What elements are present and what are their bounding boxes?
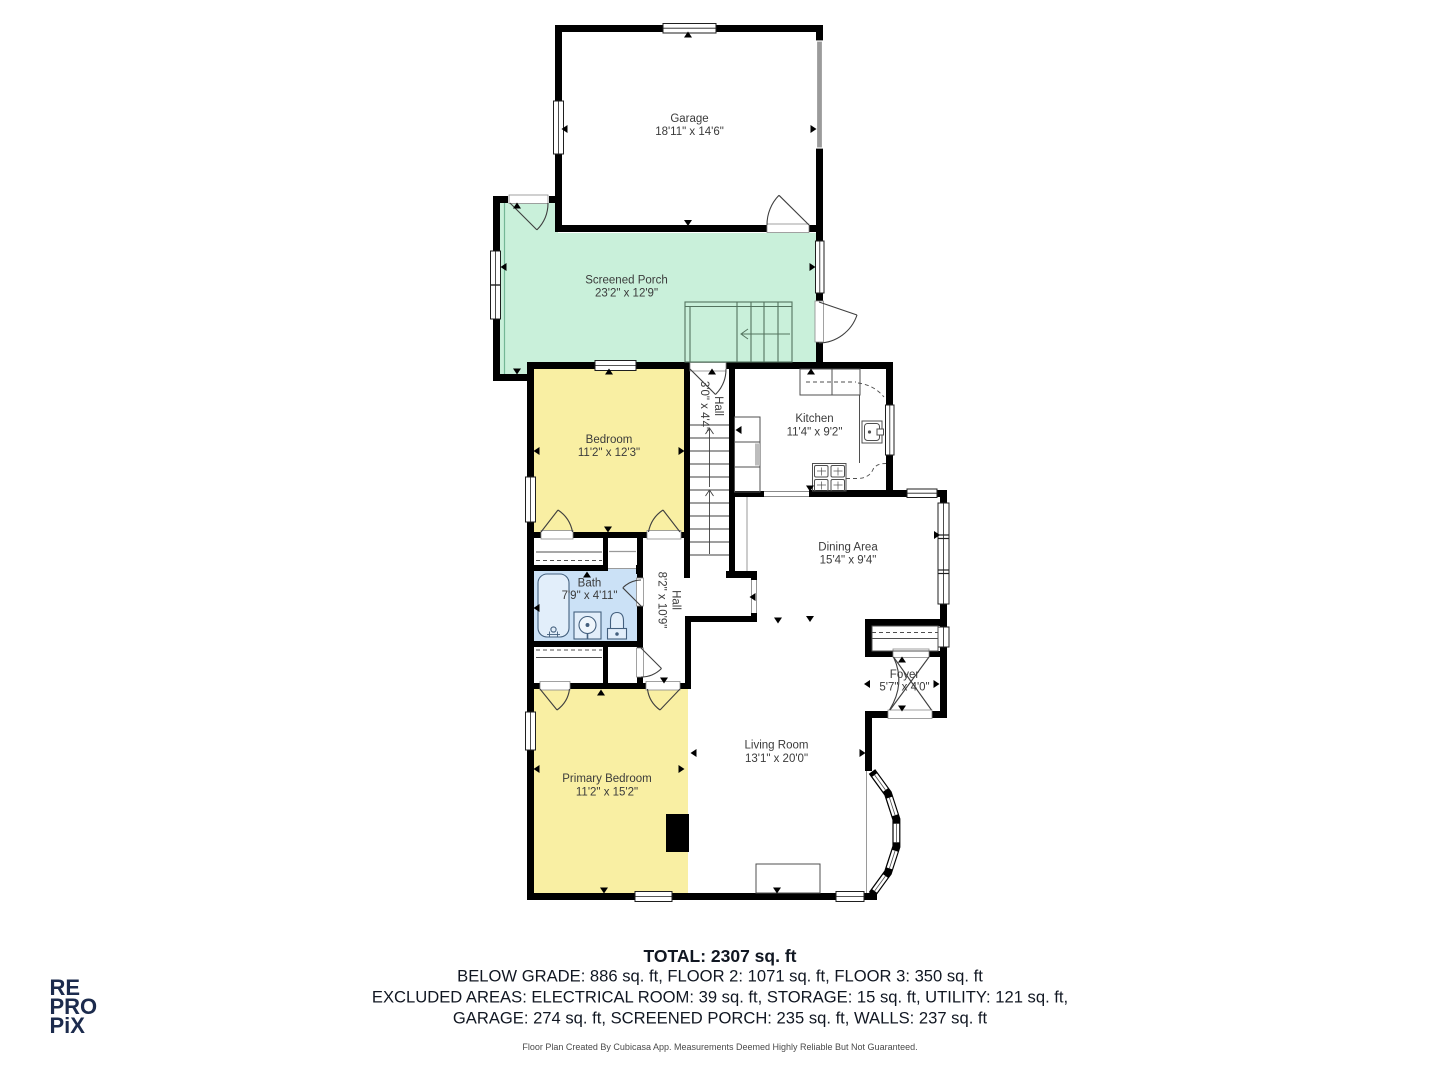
svg-text:11'2" x 12'3": 11'2" x 12'3" — [578, 447, 640, 459]
svg-text:EXCLUDED AREAS: ELECTRICAL ROO: EXCLUDED AREAS: ELECTRICAL ROOM: 39 sq. … — [372, 988, 1068, 1007]
svg-text:Kitchen: Kitchen — [795, 413, 833, 425]
svg-text:TOTAL: 2307 sq. ft: TOTAL: 2307 sq. ft — [644, 946, 797, 966]
svg-text:Dining Area: Dining Area — [818, 542, 878, 554]
svg-text:23'2" x 12'9": 23'2" x 12'9" — [595, 288, 658, 300]
svg-text:11'4" x 9'2": 11'4" x 9'2" — [787, 427, 843, 439]
svg-text:BELOW GRADE: 886 sq. ft, FLOOR: BELOW GRADE: 886 sq. ft, FLOOR 2: 1071 s… — [457, 967, 983, 986]
svg-text:15'4" x 9'4": 15'4" x 9'4" — [820, 555, 877, 567]
svg-text:13'1" x 20'0": 13'1" x 20'0" — [745, 753, 808, 765]
svg-text:Floor Plan Created By Cubicasa: Floor Plan Created By Cubicasa App. Meas… — [522, 1042, 917, 1052]
svg-text:18'11" x 14'6": 18'11" x 14'6" — [655, 126, 724, 138]
svg-text:Bath: Bath — [578, 578, 602, 590]
svg-text:Primary Bedroom: Primary Bedroom — [562, 773, 651, 785]
svg-text:Living Room: Living Room — [745, 740, 809, 752]
svg-text:PiX: PiX — [50, 1013, 86, 1038]
svg-text:Garage: Garage — [670, 113, 708, 125]
svg-text:Screened Porch: Screened Porch — [585, 275, 667, 287]
svg-text:11'2" x 15'2": 11'2" x 15'2" — [576, 787, 638, 799]
svg-text:Bedroom: Bedroom — [586, 434, 633, 446]
svg-text:7'9" x 4'11": 7'9" x 4'11" — [562, 590, 618, 602]
svg-text:5'7" x 4'0": 5'7" x 4'0" — [879, 682, 929, 694]
svg-text:GARAGE: 274 sq. ft, SCREENED P: GARAGE: 274 sq. ft, SCREENED PORCH: 235 … — [453, 1009, 988, 1028]
svg-text:Foyer: Foyer — [890, 669, 920, 681]
